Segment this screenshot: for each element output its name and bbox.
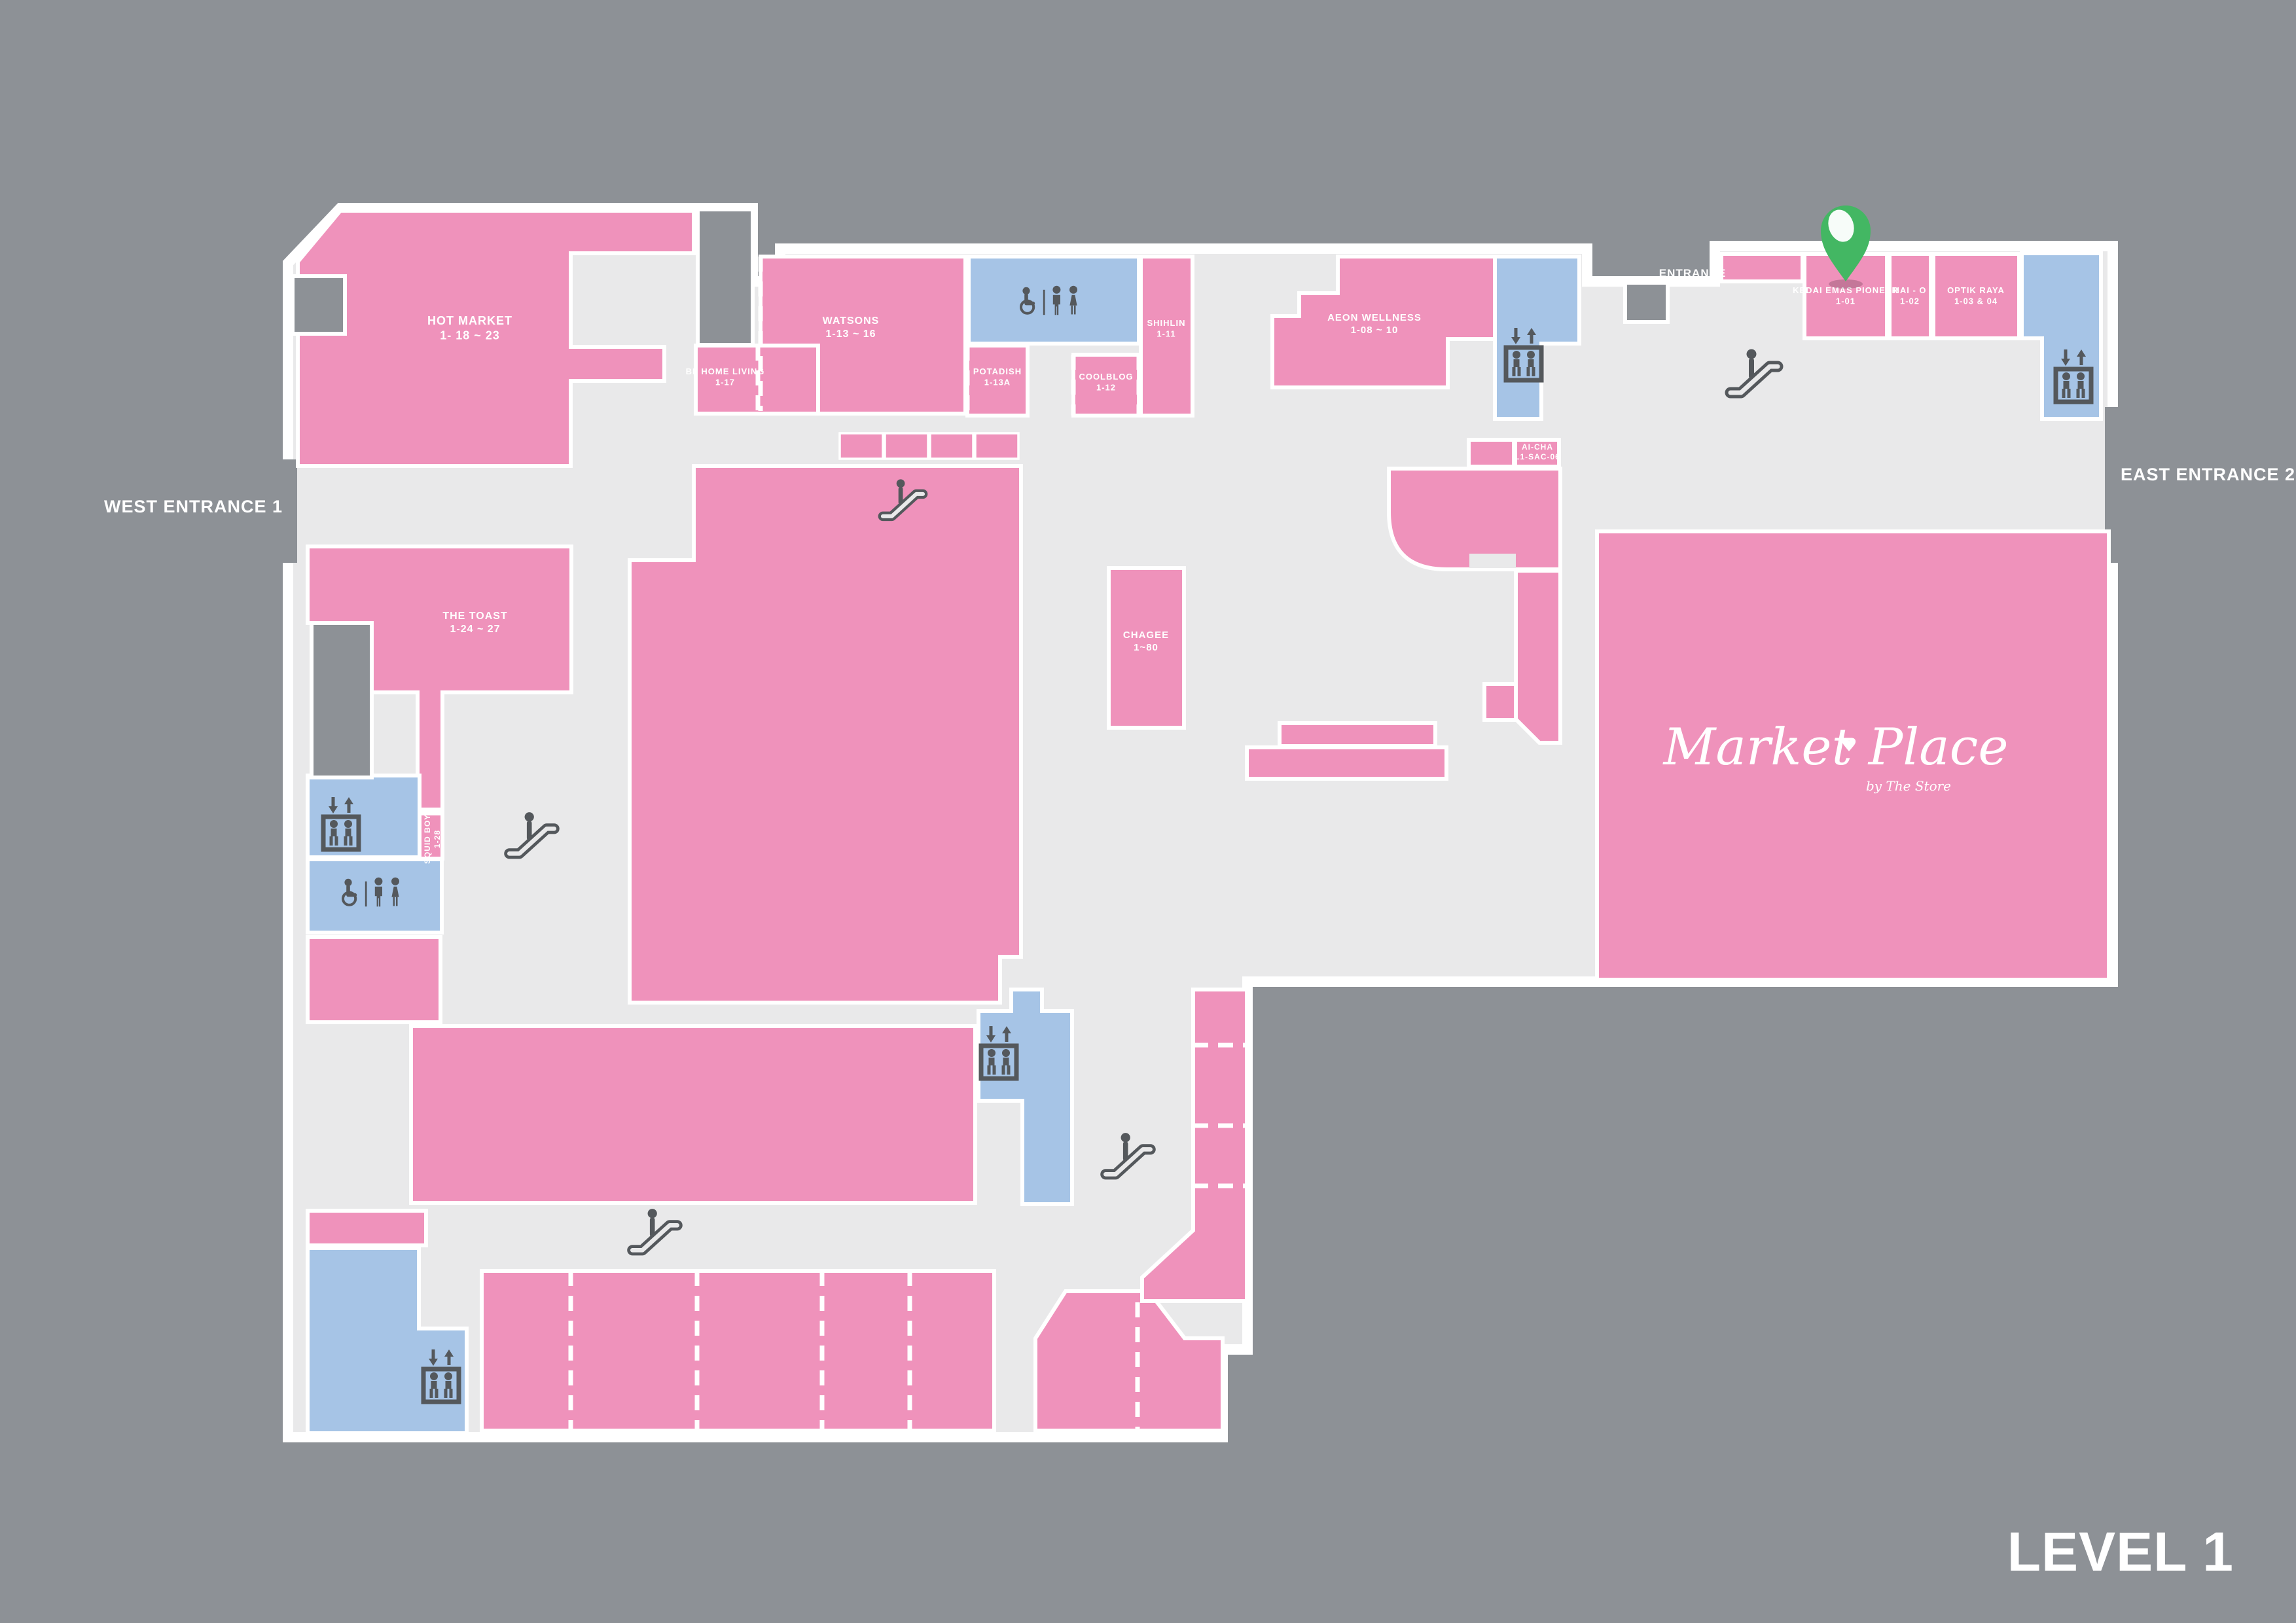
structure-void [293,276,345,334]
shop-strip-shop[interactable] [1721,254,1803,281]
shop-center-bar-b[interactable] [1247,747,1446,779]
structure-void [1625,283,1668,322]
shop-center-kiosk-a[interactable] [1469,440,1514,467]
structure-void [1469,554,1516,568]
top-entrance-label: ENTRANCE [1659,267,1726,279]
west-entrance-label: WEST ENTRANCE 1 [104,497,283,516]
shop-label-optik-raya: OPTIK RAYA1-03 & 04 [1947,285,2005,306]
toilet-block-west [308,859,442,933]
shop-center-bar-a[interactable] [1280,723,1435,746]
shop-center-tab[interactable] [1484,684,1516,720]
kiosk[interactable] [840,433,883,459]
level-label: LEVEL 1 [2007,1521,2234,1582]
heart-icon: ♥ [1840,734,1857,756]
structure-void [312,623,372,777]
shop-center-block-b[interactable] [1516,571,1560,743]
shop-south-row[interactable] [482,1271,994,1431]
shop-southwest-block[interactable] [411,1026,975,1203]
structure-void [698,209,753,345]
shop-west-block-b[interactable] [308,1211,426,1245]
east-entrance-label: EAST ENTRANCE 2 [2121,465,2295,484]
market-place-logo-subtext: by The Store [1866,778,1951,794]
market-place-logo-text: Market Place [1662,718,2009,777]
kiosk[interactable] [930,433,973,459]
shop-west-block-a[interactable] [308,937,440,1022]
mall-floor-plan: HOT MARKET1- 18 ~ 23BL HOME LIVING1-17WA… [0,0,2296,1623]
kiosk[interactable] [975,433,1018,459]
kiosk[interactable] [885,433,928,459]
